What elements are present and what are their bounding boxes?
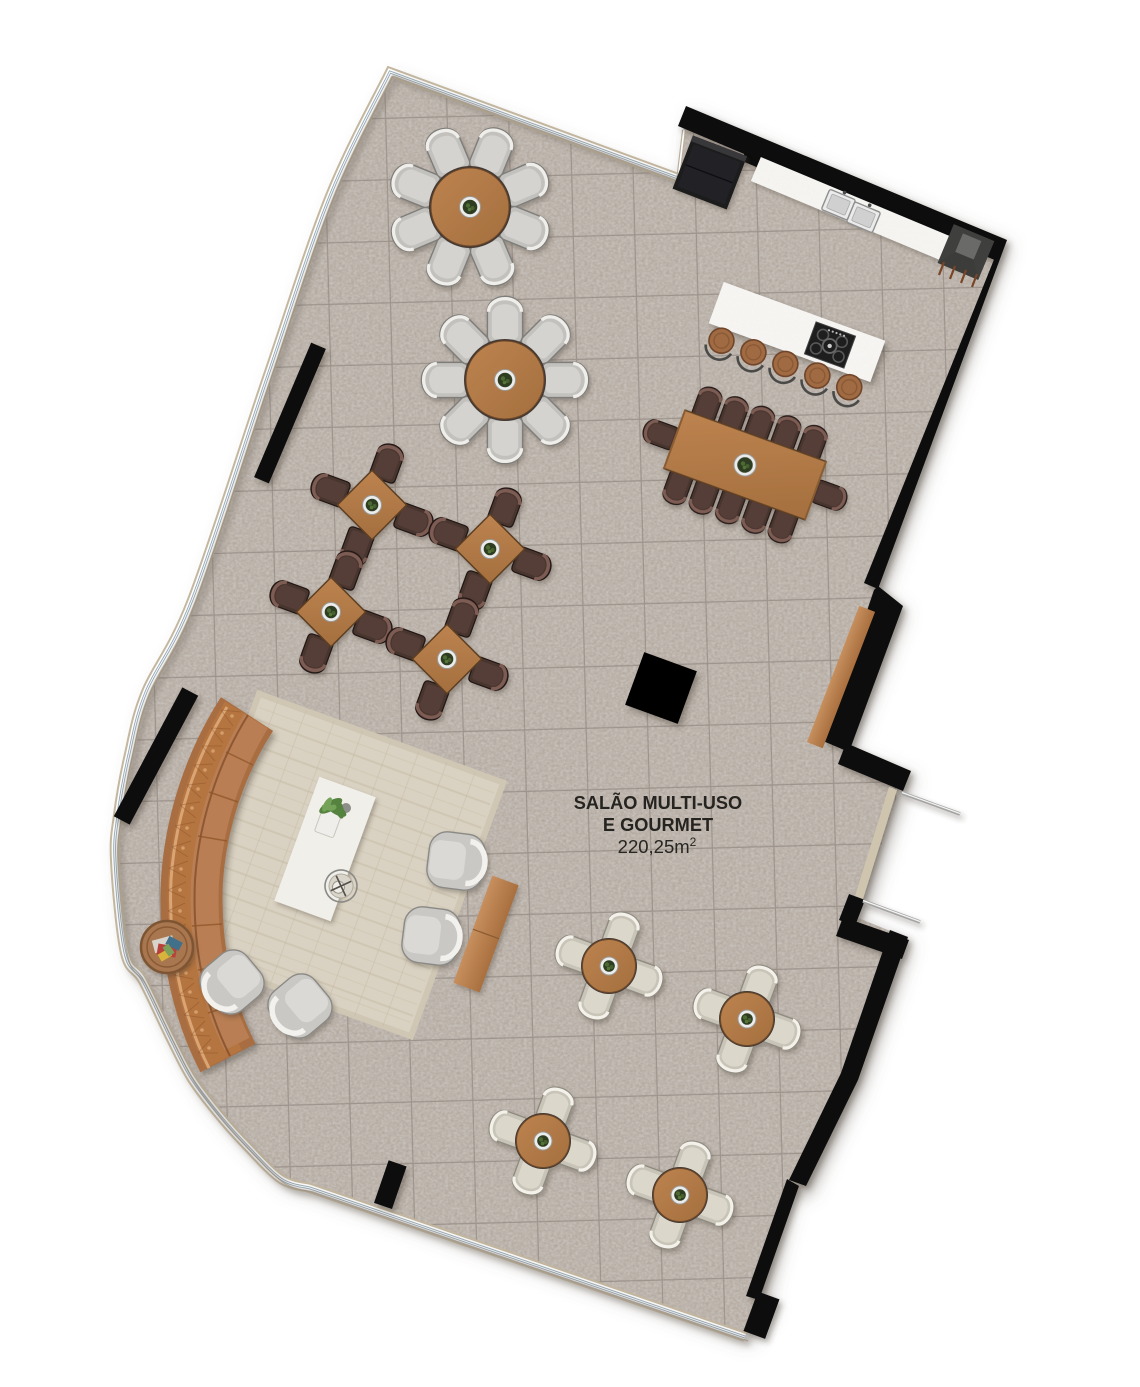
svg-text:220,25m2: 220,25m2 <box>618 835 697 857</box>
svg-text:SALÃO MULTI-USO: SALÃO MULTI-USO <box>574 792 742 813</box>
svg-text:E GOURMET: E GOURMET <box>603 815 713 835</box>
